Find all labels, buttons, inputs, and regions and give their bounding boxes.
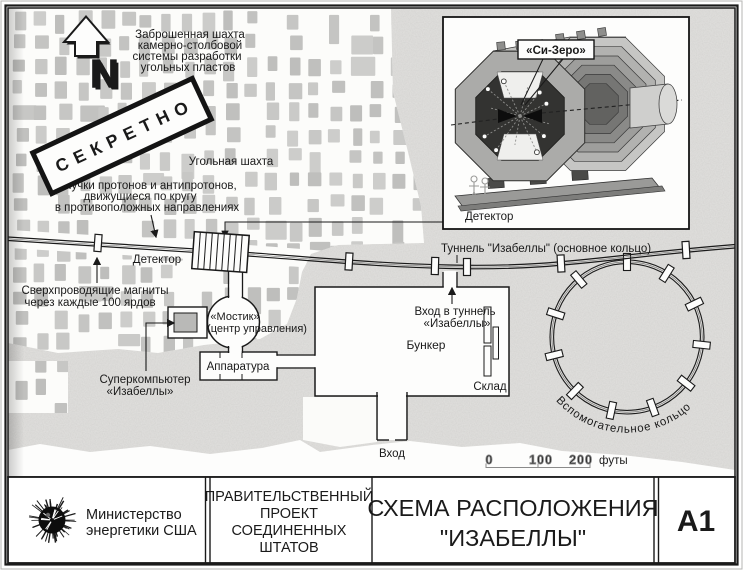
- mine-pillar: [59, 104, 72, 120]
- mine-pillar: [247, 218, 260, 230]
- scale-200: 200: [569, 453, 593, 467]
- sheet-number: А1: [677, 505, 715, 538]
- mine-pillar: [55, 57, 67, 75]
- track-endpoint: [542, 134, 547, 139]
- mine-pillar: [245, 172, 258, 187]
- mine-pillar: [143, 312, 155, 327]
- magnets-note-line2: через каждые 100 ярдов: [24, 297, 155, 309]
- mine-pillar: [160, 152, 170, 171]
- detector-cylinder: [630, 84, 677, 128]
- mine-pillar: [34, 264, 45, 283]
- mine-pillar: [244, 198, 255, 216]
- bridge-label-line2: (центр управления): [207, 323, 307, 335]
- tunnel-magnet: [557, 255, 565, 272]
- mine-pillar: [351, 57, 375, 76]
- mine-pillar: [35, 59, 47, 74]
- drawing-title-line2: "ИЗАБЕЛЛЫ": [440, 525, 586, 551]
- scale-unit: футы: [599, 455, 628, 467]
- agency-name-line1: Министерство: [86, 507, 182, 523]
- mine-pillar: [266, 82, 275, 100]
- mine-pillar: [332, 221, 344, 236]
- mine-pillar: [395, 152, 404, 164]
- si-zero-label: «Си-Зеро»: [526, 45, 586, 57]
- mine-pillar: [227, 83, 238, 98]
- mine-pillar: [373, 152, 382, 164]
- mine-pillar: [244, 84, 256, 97]
- mine-pillar: [34, 106, 47, 121]
- mine-pillar: [139, 15, 151, 28]
- detector-inset: «Си-Зеро» Детектор: [443, 17, 689, 229]
- mine-pillar: [267, 288, 280, 301]
- mine-pillar: [268, 56, 278, 71]
- mine-pillar: [392, 174, 405, 189]
- mine-pillar: [55, 15, 64, 34]
- mine-pillar: [309, 130, 322, 144]
- mine-pillar: [290, 223, 303, 242]
- mine-pillar: [122, 265, 136, 284]
- tunnel-label: Туннель "Изабеллы" (основное кольцо): [441, 243, 651, 255]
- mine-pillar: [350, 105, 362, 121]
- left-edge-shadow: [8, 8, 24, 477]
- mine-pillar: [161, 265, 173, 279]
- supercomputer-label-line2: «Изабеллы»: [107, 386, 174, 398]
- mine-pillar: [289, 148, 302, 160]
- mine-pillar: [266, 125, 276, 137]
- mine-pillar: [287, 15, 299, 30]
- mine-pillar: [141, 267, 153, 282]
- mine-pillar: [99, 313, 112, 330]
- mine-pillar: [247, 11, 257, 23]
- mine-pillar: [329, 173, 342, 186]
- project-line4: ШТАТОВ: [259, 540, 318, 556]
- track-endpoint: [486, 87, 491, 92]
- tunnel-magnet: [345, 253, 353, 270]
- tunnel-magnet: [94, 234, 102, 251]
- mine-pillar: [351, 36, 373, 55]
- mine-pillar: [290, 173, 299, 186]
- drawing-sheet: Вспомогательное кольцо Бункер Склад: [0, 0, 743, 570]
- mine-pillar: [308, 172, 322, 186]
- mine-pillar: [330, 60, 341, 74]
- map-detector-block: [192, 232, 249, 273]
- abandoned-mine-note: Заброшенная шахта камерно-столбовой сист…: [132, 29, 245, 74]
- mine-pillar: [55, 81, 67, 98]
- mine-pillar: [223, 11, 232, 31]
- mine-pillar: [118, 334, 140, 346]
- tunnel-entrance-line1: Вход в туннель: [414, 306, 495, 318]
- scale-100: 100: [529, 453, 553, 467]
- mine-pillar: [373, 37, 383, 55]
- tunnel-magnet: [431, 257, 438, 274]
- inset-detector-label: Детектор: [465, 211, 513, 223]
- mine-pillar: [267, 103, 279, 121]
- mine-pillar: [351, 195, 365, 211]
- tunnel-entrance-line2: «Изабеллы»: [424, 318, 491, 330]
- mine-pillar: [226, 103, 240, 120]
- mine-pillar: [370, 15, 380, 32]
- mine-pillar: [140, 153, 150, 169]
- mine-pillar: [308, 199, 319, 212]
- mine-pillar: [120, 312, 132, 328]
- mine-pillar: [245, 34, 255, 48]
- apparatus-label: Аппаратура: [207, 361, 270, 373]
- mine-pillar: [34, 11, 47, 25]
- mine-pillar: [100, 267, 109, 279]
- mine-pillar: [122, 12, 136, 26]
- tunnel-magnet: [464, 259, 471, 276]
- mine-pillar: [36, 126, 47, 144]
- mine-pillar: [328, 129, 340, 142]
- mine-pillar: [371, 81, 384, 98]
- mine-pillar: [290, 58, 301, 76]
- track-endpoint: [482, 134, 487, 139]
- track-endpoint: [544, 101, 549, 106]
- mine-pillar: [370, 198, 384, 215]
- tunnel-magnet: [682, 241, 690, 258]
- mine-pillar: [56, 333, 69, 350]
- entrance-label: Вход: [379, 448, 405, 460]
- mine-pillar: [287, 131, 298, 147]
- mine-pillar: [121, 83, 132, 100]
- project-line3: СОЕДИНЕННЫХ: [232, 523, 347, 539]
- map-detector-label: Детектор: [133, 254, 181, 266]
- track-endpoint: [501, 79, 506, 84]
- mine-pillar: [35, 83, 47, 97]
- track-endpoint: [537, 90, 542, 95]
- mine-pillar: [55, 264, 66, 281]
- mine-pillar: [164, 219, 177, 238]
- mine-pillar: [309, 218, 322, 237]
- mine-pillar: [289, 266, 299, 284]
- mine-pillar: [247, 57, 257, 77]
- mine-pillar: [78, 266, 91, 283]
- coal-mine-label: Угольная шахта: [189, 156, 274, 168]
- mine-pillar: [308, 103, 318, 118]
- bridge-label-line1: «Мостик»: [210, 311, 259, 323]
- north-letter: N: [90, 53, 118, 96]
- agency-name-line2: энергетики США: [86, 523, 197, 539]
- storage-label: Склад: [473, 381, 507, 393]
- mine-pillar: [373, 173, 386, 190]
- mine-pillar: [79, 314, 90, 332]
- mine-pillar: [120, 61, 130, 78]
- mine-pillar: [370, 131, 380, 144]
- mine-pillar: [55, 311, 68, 330]
- mine-pillar: [36, 379, 46, 395]
- magnets-note-line1: Сверхпроводящие магниты: [21, 285, 168, 297]
- mine-pillar: [227, 127, 241, 142]
- mine-pillar: [35, 35, 49, 48]
- supercomputer-label-line1: Суперкомпьютер: [99, 374, 190, 386]
- mine-pillar: [185, 219, 195, 239]
- mine-note-line4: угольных пластов: [141, 62, 236, 74]
- ring-magnet: [693, 340, 711, 349]
- mine-pillar: [289, 102, 299, 121]
- white-pocket: [303, 397, 377, 447]
- mine-pillar: [290, 36, 303, 51]
- mine-pillar: [329, 15, 339, 44]
- mine-pillar: [119, 36, 129, 50]
- mine-pillar: [370, 104, 382, 117]
- logo-glint: [46, 513, 50, 517]
- scale-0: 0: [486, 453, 493, 467]
- map-area: Вспомогательное кольцо Бункер Склад: [8, 8, 735, 477]
- project-line1: ПРАВИТЕЛЬСТВЕННЫЙ: [205, 487, 374, 505]
- track-endpoint: [535, 150, 540, 155]
- mine-pillar: [203, 80, 214, 96]
- ring-magnet: [624, 254, 631, 271]
- drawing-title-line1: СХЕМА РАСПОЛОЖЕНИЯ: [367, 495, 658, 521]
- mine-pillar: [265, 173, 277, 191]
- mine-pillar: [308, 82, 318, 95]
- mine-pillar: [102, 10, 116, 29]
- mine-pillar: [331, 194, 345, 206]
- schematic-canvas: Вспомогательное кольцо Бункер Склад: [0, 0, 743, 570]
- mine-pillar: [331, 107, 343, 122]
- mine-pillar: [353, 174, 363, 189]
- mine-pillar: [352, 217, 363, 234]
- mine-pillar: [269, 197, 281, 215]
- mine-pillar: [289, 83, 303, 99]
- mine-pillar: [353, 128, 362, 146]
- mine-pillar: [308, 59, 321, 76]
- mine-pillar: [350, 150, 362, 163]
- track-endpoint: [494, 148, 499, 153]
- bunker-label: Бункер: [407, 338, 446, 352]
- beams-note-line3: в противоположных направлениях: [55, 202, 240, 214]
- mine-pillar: [37, 333, 48, 350]
- title-block: Министерство энергетики США ПРАВИТЕЛЬСТВ…: [8, 477, 735, 563]
- mine-pillar: [76, 57, 89, 75]
- mine-pillar: [79, 83, 89, 101]
- project-line2: ПРОЕКТ: [260, 506, 318, 522]
- mine-pillar: [266, 221, 287, 240]
- mine-pillar: [332, 81, 345, 93]
